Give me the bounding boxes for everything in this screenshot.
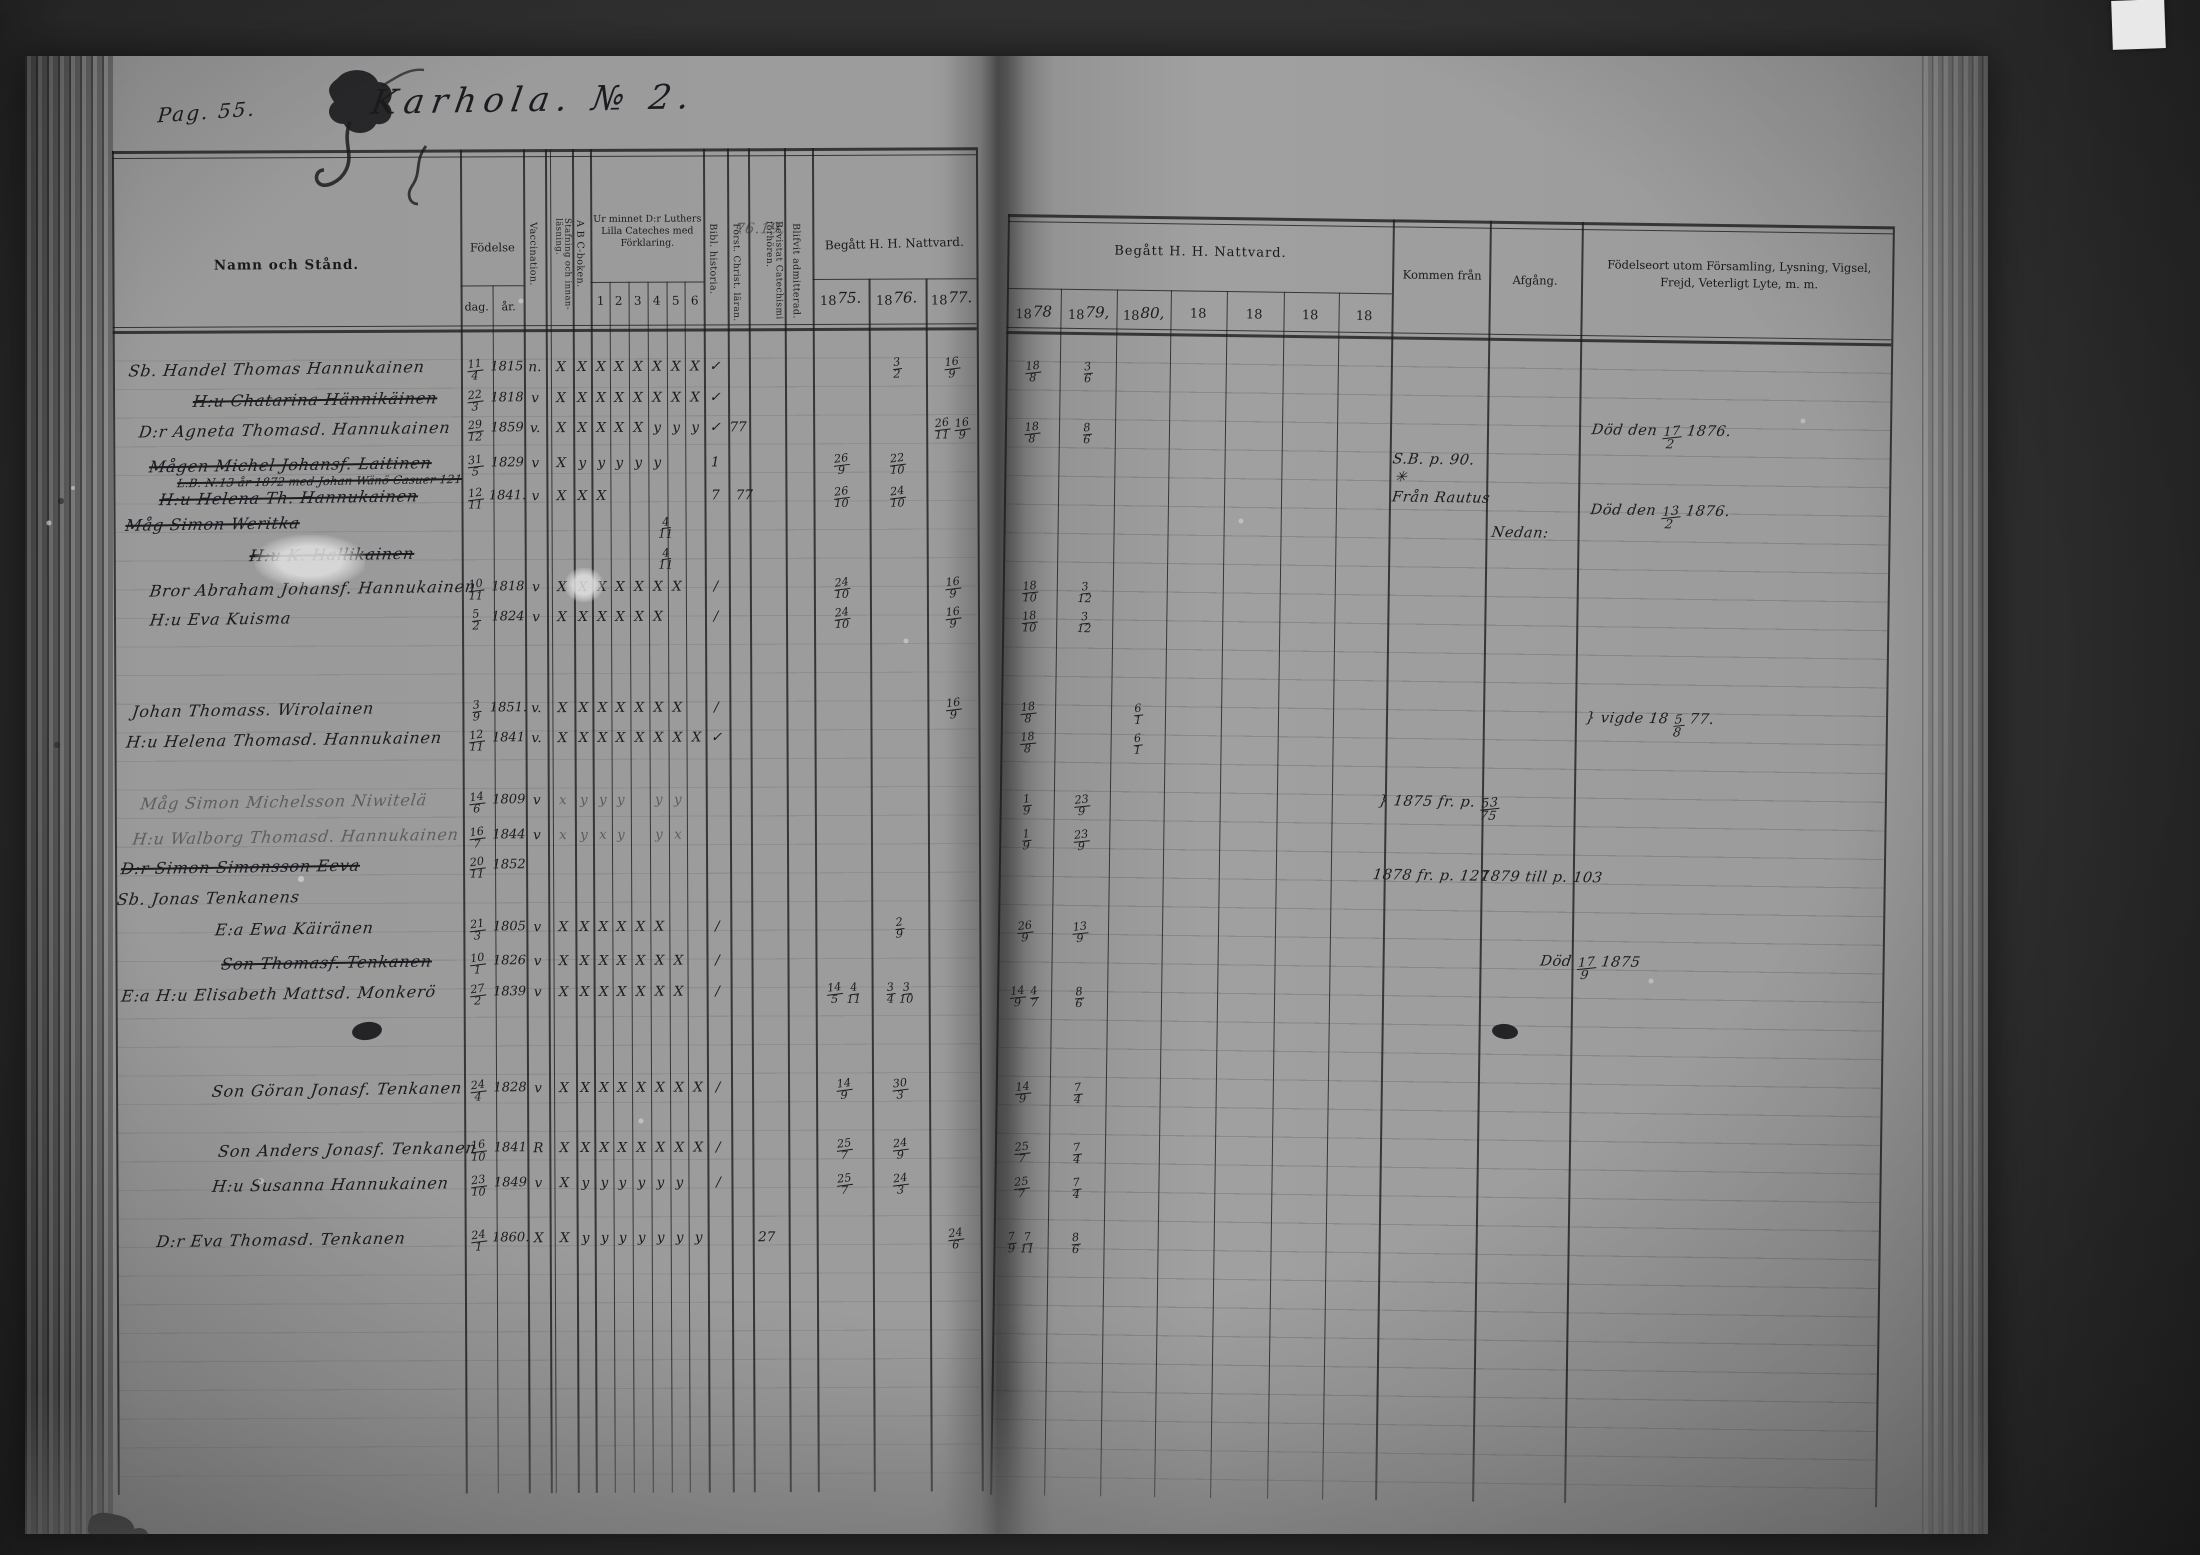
communion-date: 257 [1013,1177,1030,1199]
photo-background: Pag. 55. Karhola. № 2. Namn och Stånd. F… [0,0,2200,1555]
communion-date: 188 [1024,422,1041,444]
communion-date: 139 [1072,922,1089,944]
communion-date: 19 [1022,794,1031,816]
communion-date: 149 [1014,1082,1031,1104]
communion-date: 312 [1077,582,1092,604]
communion-date: 312 [1077,612,1092,634]
communion-date: 74 [1072,1178,1081,1200]
margin-annotation: Död den 132 1876. [1588,502,1731,531]
communion-date: 239 [1073,795,1090,817]
photo-corner-card [2111,0,2166,50]
grid-line [1267,292,1285,1499]
ink-blot-bottom-left-2 [130,1528,148,1542]
grid-line [1154,290,1172,1497]
communion-date: 257 [1014,1142,1031,1164]
grid-line [1044,289,1062,1496]
communion-date: 61 [1133,704,1142,726]
communion-date: 188 [1019,732,1036,754]
grid-line [1007,288,1392,294]
margin-annotation: S.B. p. 90. [1392,451,1476,468]
table-right-page: Begått H. H. Nattvard. Kommen från Afgån… [0,0,2200,1555]
grid-line [1322,293,1340,1500]
margin-annotation: Död 179 1875 [1538,954,1642,982]
communion-date: 188 [1025,361,1042,383]
column-header-afgang: Afgång. [1491,273,1579,288]
communion-date: 149 47 [1009,986,1039,1009]
dust-specks [0,0,2,2]
grid-line [1472,221,1491,1502]
grid-line [1564,222,1583,1503]
communion-date: 79 711 [1007,1232,1035,1255]
communion-date: 74 [1072,1143,1081,1165]
year-header-cell: 18 [1302,308,1320,323]
communion-date: 188 [1020,702,1037,724]
communion-date: 269 [1017,921,1034,943]
column-header-nattvard-right: Begått H. H. Nattvard. [1011,242,1389,262]
communion-date: 86 [1071,1233,1080,1255]
grid-line [990,214,1010,1495]
row-guides-right [991,333,1891,1505]
margin-annotation: Från Rautus [1391,489,1491,506]
margin-annotation: } vigde 18 58 77. [1583,710,1715,738]
grid-line [1210,291,1228,1498]
year-header-cell: 18 [1190,307,1208,322]
communion-date: 86 [1074,987,1083,1009]
communion-date: 74 [1073,1083,1082,1105]
margin-annotation: 1878 fr. p. 127 [1372,867,1491,885]
margin-annotation: } 1875 fr. p. 5375 [1376,793,1501,821]
grid-line [1875,226,1895,1507]
communion-date: 1810 [1021,611,1038,633]
grid-line [1375,219,1395,1500]
year-header-cell: 18 [1356,309,1374,324]
communion-date: 86 [1082,423,1091,445]
year-header-cell: 18 [1246,307,1264,322]
communion-date: 36 [1083,362,1092,384]
margin-annotation: 1879 till p. 103 [1480,869,1604,887]
grid-line [1100,290,1118,1497]
communion-date: 239 [1073,830,1090,852]
communion-date: 61 [1133,734,1142,756]
communion-date: 1810 [1021,581,1038,603]
margin-annotation: ✳ [1393,469,1408,485]
white-smudge [255,535,365,587]
year-header-cell: 1879, [1068,305,1110,324]
margin-annotation: Död den 172 1876. [1589,422,1732,451]
margin-annotation: Nedan: [1491,525,1550,542]
year-header-cell: 1880, [1123,306,1165,325]
ink-blot-top [298,58,468,223]
column-header-kommen: Kommen från [1396,267,1488,282]
communion-date: 19 [1022,829,1031,851]
column-header-fodelseort: Födelseort utom Församling, Lysning, Vig… [1591,256,1887,295]
year-header-cell: 1878 [1015,304,1052,323]
white-smudge-small [565,568,603,602]
